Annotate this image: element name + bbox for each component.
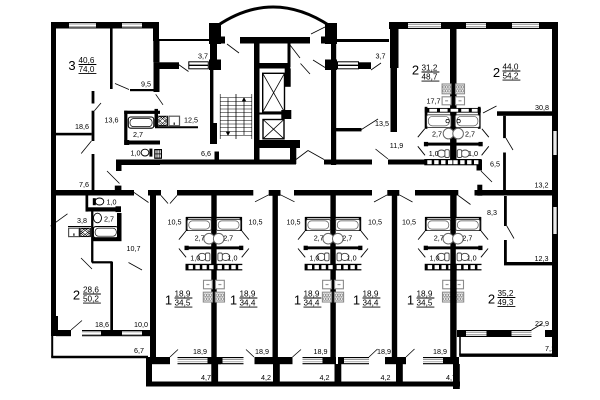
svg-text:4,7: 4,7 (446, 373, 456, 382)
svg-text:6,6: 6,6 (201, 149, 211, 158)
svg-text:18,9: 18,9 (304, 290, 320, 299)
svg-text:1,0: 1,0 (429, 149, 439, 158)
svg-text:34,5: 34,5 (417, 299, 433, 308)
svg-text:17,7: 17,7 (427, 97, 441, 106)
svg-text:13,5: 13,5 (375, 119, 389, 128)
svg-text:1: 1 (165, 293, 172, 308)
svg-text:1,0: 1,0 (107, 198, 117, 207)
svg-text:2,7: 2,7 (342, 233, 352, 242)
svg-text:28,6: 28,6 (83, 286, 99, 295)
svg-text:8,3: 8,3 (487, 208, 497, 217)
svg-text:12,5: 12,5 (184, 116, 198, 125)
svg-text:1: 1 (353, 293, 360, 308)
svg-text:1: 1 (294, 293, 301, 308)
svg-text:2,7: 2,7 (434, 233, 444, 242)
svg-text:44,0: 44,0 (503, 63, 519, 72)
svg-text:74,0: 74,0 (79, 65, 95, 74)
svg-text:18,9: 18,9 (255, 347, 269, 356)
svg-text:18,9: 18,9 (417, 290, 433, 299)
svg-text:3: 3 (68, 58, 75, 73)
svg-text:1: 1 (407, 293, 414, 308)
svg-text:18,9: 18,9 (433, 347, 447, 356)
svg-text:1,0: 1,0 (190, 253, 200, 262)
svg-text:2,7: 2,7 (104, 215, 114, 224)
svg-text:4,2: 4,2 (320, 373, 330, 382)
svg-text:18,9: 18,9 (240, 290, 256, 299)
svg-text:2,7: 2,7 (314, 233, 324, 242)
svg-text:2: 2 (412, 63, 419, 78)
svg-text:18,9: 18,9 (175, 290, 191, 299)
svg-text:2,7: 2,7 (432, 130, 442, 139)
svg-text:18,9: 18,9 (377, 347, 391, 356)
svg-text:30,8: 30,8 (535, 103, 549, 112)
svg-text:6,7: 6,7 (134, 346, 144, 355)
svg-text:34,4: 34,4 (363, 299, 379, 308)
svg-text:1,0: 1,0 (131, 149, 141, 158)
svg-text:10,5: 10,5 (168, 217, 182, 226)
svg-text:13,2: 13,2 (535, 181, 549, 190)
svg-text:9,5: 9,5 (141, 80, 151, 89)
svg-text:40,6: 40,6 (79, 56, 95, 65)
svg-text:2,7: 2,7 (133, 130, 143, 139)
svg-text:10,5: 10,5 (249, 217, 263, 226)
svg-text:50,2: 50,2 (83, 295, 99, 304)
svg-text:3,8: 3,8 (77, 216, 87, 225)
svg-text:2: 2 (493, 65, 500, 80)
svg-text:1,0: 1,0 (468, 149, 478, 158)
svg-text:13,6: 13,6 (105, 116, 119, 125)
svg-text:4,2: 4,2 (261, 373, 271, 382)
svg-text:2,7: 2,7 (462, 233, 472, 242)
svg-text:2,7: 2,7 (195, 233, 205, 242)
svg-text:7,6: 7,6 (79, 180, 89, 189)
svg-text:4,7: 4,7 (201, 373, 211, 382)
svg-text:31,2: 31,2 (422, 64, 438, 73)
svg-text:34,5: 34,5 (175, 299, 191, 308)
svg-text:2,7: 2,7 (223, 233, 233, 242)
svg-text:11,9: 11,9 (390, 141, 403, 150)
svg-text:10,5: 10,5 (402, 217, 416, 226)
svg-text:48,7: 48,7 (422, 73, 438, 82)
svg-text:34,4: 34,4 (240, 299, 256, 308)
svg-text:2: 2 (488, 292, 495, 307)
svg-text:3,7: 3,7 (198, 52, 208, 61)
svg-text:10,5: 10,5 (368, 217, 382, 226)
svg-text:35,2: 35,2 (498, 289, 514, 298)
svg-text:10,5: 10,5 (287, 217, 301, 226)
svg-text:1,0: 1,0 (430, 253, 440, 262)
svg-text:3,7: 3,7 (376, 52, 386, 61)
svg-text:10,0: 10,0 (134, 320, 148, 329)
svg-text:18,9: 18,9 (193, 347, 207, 356)
svg-text:1,0: 1,0 (228, 253, 238, 262)
svg-text:49,3: 49,3 (498, 298, 514, 307)
svg-text:18,9: 18,9 (363, 290, 379, 299)
svg-text:1: 1 (230, 293, 237, 308)
svg-text:1,0: 1,0 (347, 253, 357, 262)
svg-text:18,6: 18,6 (95, 320, 109, 329)
svg-text:2: 2 (73, 288, 80, 303)
svg-text:4,2: 4,2 (381, 373, 391, 382)
svg-text:18,9: 18,9 (314, 347, 328, 356)
svg-text:18,6: 18,6 (75, 122, 89, 131)
svg-text:7,1: 7,1 (545, 344, 555, 353)
svg-text:10,7: 10,7 (127, 244, 141, 253)
svg-text:12,3: 12,3 (535, 254, 549, 263)
svg-text:1,0: 1,0 (309, 253, 319, 262)
svg-text:2,7: 2,7 (465, 130, 475, 139)
svg-text:6,5: 6,5 (490, 160, 500, 169)
svg-text:34,4: 34,4 (304, 299, 320, 308)
svg-text:54,2: 54,2 (503, 72, 519, 81)
svg-text:1,0: 1,0 (467, 253, 477, 262)
